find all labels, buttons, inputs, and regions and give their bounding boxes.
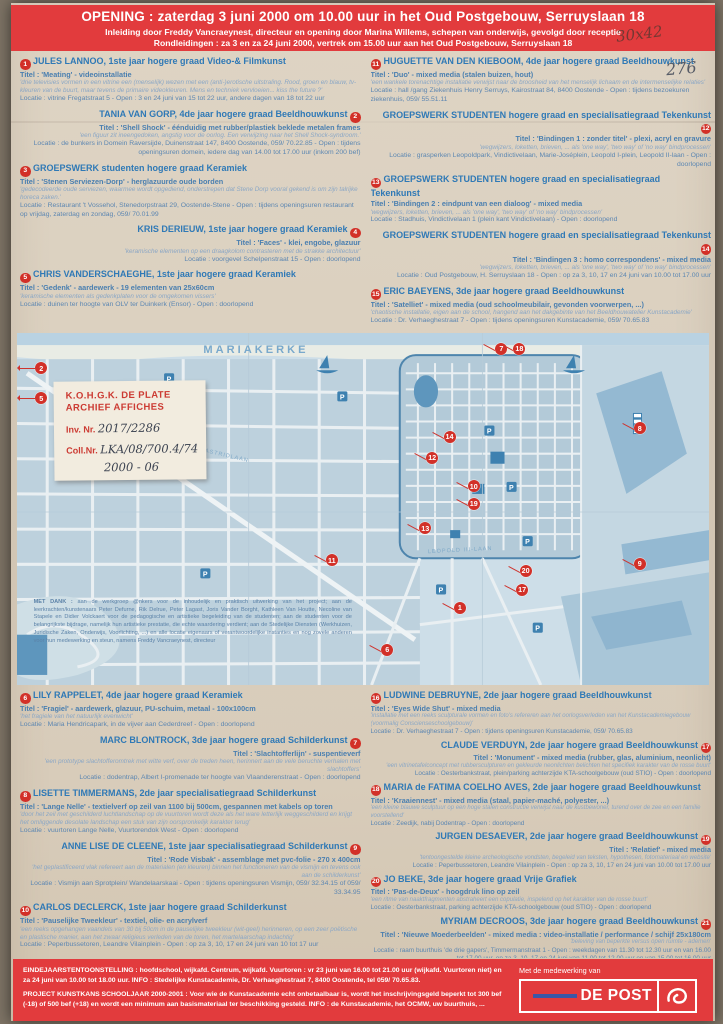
artwork-description: 'keramische elementen op een draagkolom … [20, 248, 361, 256]
map-marker-13: 13 [419, 522, 431, 534]
entry-heading: 10 CARLOS DECLERCK, 1ste jaar hogere gra… [20, 902, 361, 916]
map-marker-20: 20 [520, 565, 532, 577]
exhibit-entry-18: 18 MARIA de FATIMA COELHO AVES, 2de jaar… [371, 782, 712, 829]
artwork-location: Locatie : Oesterbankstraat, plein/parkin… [371, 770, 712, 778]
artist-name: GROEPSWERK STUDENTEN hogere graad en spe… [383, 230, 711, 240]
artwork-title: Titel : 'Eyes Wide Shut' - mixed media [371, 704, 712, 713]
artwork-title: Titel : 'Pas-de-Deux' - hoogdruk lino op… [371, 887, 712, 896]
map-marker-5: 5 [35, 392, 47, 404]
entry-number-badge: 18 [371, 785, 382, 796]
artist-name: MARC BLONTROCK, 3de jaar hogere graad Sc… [100, 735, 348, 745]
exhibit-entry-2: TANIA VAN GORP, 4de jaar hogere graad Be… [20, 109, 361, 158]
city-map: P P P P P P P P MARIAKERKE KONINGIN ASTR… [17, 333, 709, 685]
artwork-location: Locatie : Dr. Verhaeghestraat 7 - Open :… [371, 317, 712, 326]
artist-name: LILY RAPPELET, 4de jaar hogere graad Ker… [33, 690, 243, 700]
artwork-description: 'een kleine blauwe sculptuur op een hoge… [371, 805, 712, 820]
exhibit-entry-12: GROEPSWERK STUDENTEN hogere graad en spe… [371, 110, 712, 170]
artist-name: GROEPSWERK studenten hogere graad Kerami… [33, 163, 247, 173]
entry-number-badge: 6 [20, 693, 31, 704]
artist-name: GROEPSWERK STUDENTEN hogere graad en spe… [371, 174, 661, 198]
entry-heading: 20 JO BEKE, 3de jaar hogere graad Vrije … [371, 874, 712, 888]
sponsor-label: Met de medewerking van [519, 966, 705, 975]
artwork-location: Locatie : de bunkers in Domein Raversijd… [20, 140, 361, 158]
artwork-description: 'chaotische installatie, eigen aan de sc… [371, 309, 712, 317]
entry-heading: 1 JULES LANNOO, 1ste jaar hogere graad V… [20, 56, 361, 70]
exhibit-entry-10: 10 CARLOS DECLERCK, 1ste jaar hogere gra… [20, 902, 361, 950]
de-post-wordmark: DE POST [521, 981, 657, 1011]
artwork-location: Locatie : Vismijn aan Sprotplein/ Wandel… [20, 880, 361, 898]
exhibit-entry-11: 11 HUGUETTE VAN DEN KIEBOOM, 4de jaar ho… [371, 56, 712, 105]
artist-name: JO BEKE, 3de jaar hogere graad Vrije Gra… [384, 874, 577, 884]
entry-heading: 5 CHRIS VANDERSCHAEGHE, 1ste jaar hogere… [20, 269, 361, 283]
exhibit-entry-14: GROEPSWERK STUDENTEN hogere graad en spe… [371, 230, 712, 281]
artwork-location: Locatie : vuurtoren Lange Nelle, Vuurtor… [20, 827, 361, 836]
acknowledgements-text: aan de werkgroep @nkers voor de inhoudel… [34, 599, 352, 644]
entry-heading: 18 MARIA de FATIMA COELHO AVES, 2de jaar… [371, 782, 712, 796]
acknowledgements-label: MET DANK : [34, 599, 73, 605]
artwork-description: 'tentoongestelde kleine archeologische v… [371, 855, 712, 863]
artwork-location: Locatie : Oesterbankstraat, parking acht… [371, 904, 712, 912]
entry-number-badge: 21 [701, 919, 712, 930]
artwork-description: 'wegwijzers, loketten, brieven, ... als … [371, 209, 712, 217]
entry-number-badge: 17 [701, 743, 712, 754]
header-band: OPENING : zaterdag 3 juni 2000 om 10.00 … [11, 5, 715, 51]
exhibit-entry-6: 6 LILY RAPPELET, 4de jaar hogere graad K… [20, 690, 361, 730]
map-marker-6: 6 [381, 644, 393, 656]
artist-name: GROEPSWERK STUDENTEN hogere graad en spe… [383, 110, 711, 120]
entry-heading: 11 HUGUETTE VAN DEN KIEBOOM, 4de jaar ho… [371, 56, 712, 70]
entries-top-section: 1 JULES LANNOO, 1ste jaar hogere graad V… [20, 56, 711, 332]
artwork-description: 'een prototype slachtofferomtrek met wit… [20, 758, 361, 774]
artwork-description: 'een ritme van naaktfragmenten abstrahee… [371, 897, 712, 905]
artwork-description: 'wegwijzers, loketten, brieven, ... als … [371, 264, 712, 272]
artwork-location: Locatie : hall /gang Ziekenhuis Henry Se… [371, 87, 712, 105]
entry-heading: GROEPSWERK STUDENTEN hogere graad en spe… [371, 110, 712, 135]
map-marker-18: 18 [513, 343, 525, 355]
entries-column-bottom-right: 16 LUDWINE DEBRUYNE, 2de jaar hogere gra… [371, 690, 712, 958]
artwork-title: Titel : 'Meating' - videoinstallatie [20, 70, 361, 79]
artwork-location: Locatie : Stadhuis, Vindictivelaan 1 (pl… [371, 216, 712, 225]
project-info: PROJECT KUNSTKANS SCHOOLJAAR 2000-2001 :… [23, 990, 509, 1009]
entry-heading: 13 GROEPSWERK STUDENTEN hogere graad en … [371, 174, 712, 199]
map-marker-11: 11 [326, 554, 338, 566]
entry-number-badge: 4 [350, 228, 361, 239]
entry-heading: ANNE LISE DE CLEENE, 1ste jaar specialis… [20, 841, 361, 855]
entry-heading: 16 LUDWINE DEBRUYNE, 2de jaar hogere gra… [371, 690, 712, 704]
collection-number-label: Coll.Nr. [66, 445, 98, 455]
entry-number-badge: 12 [701, 124, 712, 135]
entry-number-badge: 11 [371, 59, 382, 70]
artwork-title: Titel : 'Fragiel' - aardewerk, glazuur, … [20, 704, 361, 713]
de-post-name: DE POST [580, 987, 652, 1005]
artwork-title: Titel : 'Duo' - mixed media (stalen buiz… [371, 70, 712, 79]
entry-heading: KRIS DERIEUW, 1ste jaar hogere graad Ker… [20, 224, 361, 238]
artwork-title: Titel : 'Shell Shock' - éénduidig met ru… [20, 123, 361, 132]
artwork-description: 'beleving van beperkte versus open ruimt… [371, 939, 712, 947]
artwork-location: Locatie : Dr. Verhaeghestraat 7 - Open :… [371, 728, 712, 736]
entry-number-badge: 9 [350, 844, 361, 855]
artwork-description: 'het fragiele van het natuurlijk evenwic… [20, 713, 361, 721]
entry-heading: JURGEN DESAEVER, 2de jaar hogere graad B… [371, 831, 712, 845]
entry-number-badge: 2 [350, 112, 361, 123]
artist-name: CLAUDE VERDUYN, 2de jaar hogere graad Be… [441, 740, 698, 750]
artist-name: KRIS DERIEUW, 1ste jaar hogere graad Ker… [137, 224, 347, 234]
opening-subtitle: Inleiding door Freddy Vancraeynest, dire… [11, 27, 715, 37]
de-post-posthorn-box [657, 981, 695, 1011]
map-marker-1: 1 [454, 602, 466, 614]
entry-heading: MYRIAM DECROOS, 3de jaar hogere graad Be… [371, 916, 712, 930]
exhibit-entry-4: KRIS DERIEUW, 1ste jaar hogere graad Ker… [20, 224, 361, 264]
artwork-description: 'het geplastificeerd vlak refereert aan … [20, 864, 361, 880]
entries-column-top-left: 1 JULES LANNOO, 1ste jaar hogere graad V… [20, 56, 361, 332]
entry-heading: GROEPSWERK STUDENTEN hogere graad en spe… [371, 230, 712, 255]
map-marker-19: 19 [468, 498, 480, 510]
entry-number-badge: 20 [371, 877, 382, 888]
entry-number-badge: 13 [371, 178, 382, 189]
archive-label: K.O.H.G.K. DE PLATE ARCHIEF AFFICHES Inv… [53, 380, 206, 480]
exhibit-entry-15: 15 ERIC BAEYENS, 3de jaar hogere graad B… [371, 286, 712, 326]
artist-name: TANIA VAN GORP, 4de jaar hogere graad Be… [99, 109, 347, 119]
entries-bottom-section: 6 LILY RAPPELET, 4de jaar hogere graad K… [20, 690, 711, 958]
artwork-location: Locatie : voorgevel Schelpenstraat 15 - … [20, 256, 361, 265]
artist-name: MARIA de FATIMA COELHO AVES, 2de jaar ho… [384, 782, 701, 792]
exhibit-entry-5: 5 CHRIS VANDERSCHAEGHE, 1ste jaar hogere… [20, 269, 361, 309]
map-marker-14: 14 [444, 431, 456, 443]
collection-number-value: LKA/08/700.4/74 [100, 441, 198, 456]
inventory-number-label: Inv. Nr. [66, 424, 95, 434]
artwork-title: Titel : 'Bindingen 1 : zonder titel' - p… [371, 134, 712, 143]
exhibit-entry-13: 13 GROEPSWERK STUDENTEN hogere graad en … [371, 174, 712, 225]
artist-name: ANNE LISE DE CLEENE, 1ste jaar specialis… [61, 841, 347, 851]
artwork-location: Locatie : Peperbussetoren, Leandre Vilai… [20, 941, 361, 950]
artwork-title: Titel : 'Bindingen 3 : homo corresponden… [371, 255, 712, 264]
entry-number-badge: 16 [371, 693, 382, 704]
artist-name: HUGUETTE VAN DEN KIEBOOM, 4de jaar hoger… [384, 56, 694, 66]
posthorn-icon [664, 983, 690, 1009]
artwork-title: Titel : 'Bindingen 2 : eindpunt van een … [371, 199, 712, 208]
artwork-location: Locatie : vitrine Fregatstraat 5 - Open … [20, 95, 361, 104]
artwork-description: 'door het zeil met geschilderd luchtland… [20, 811, 361, 827]
entries-column-bottom-left: 6 LILY RAPPELET, 4de jaar hogere graad K… [20, 690, 361, 958]
artwork-title: Titel : 'Pauselijke Tweekleur' - textiel… [20, 916, 361, 925]
poster: OPENING : zaterdag 3 juni 2000 om 10.00 … [11, 3, 715, 1021]
artwork-description: 'wegwijzers, loketten, brieven, ... als … [371, 144, 712, 152]
entry-number-badge: 8 [20, 791, 31, 802]
artwork-location: Locatie : Maria Hendricapark, in de vijv… [20, 721, 361, 730]
artwork-location: Locatie : Zeedijk, nabij Dodentrap - Ope… [371, 820, 712, 828]
artwork-title: Titel : 'Gedenk' - aardewerk - 19 elemen… [20, 283, 361, 292]
artwork-location: Locatie : raam buurthuis 'de drie gapers… [371, 947, 712, 958]
artwork-description: 'een reeks opgehangen vaandels van 30 bi… [20, 926, 361, 942]
entry-number-badge: 3 [20, 166, 31, 177]
tour-info: Rondleidingen : za 3 en za 24 juni 2000,… [11, 38, 715, 48]
exhibit-entry-17: CLAUDE VERDUYN, 2de jaar hogere graad Be… [371, 740, 712, 779]
exhibit-entry-19: JURGEN DESAEVER, 2de jaar hogere graad B… [371, 831, 712, 870]
artist-name: JULES LANNOO, 1ste jaar hogere graad Vid… [33, 56, 286, 66]
artwork-title: Titel : 'Relatief' - mixed media [371, 845, 712, 854]
archive-org-line2: ARCHIEF AFFICHES [65, 401, 195, 414]
entries-column-top-right: 11 HUGUETTE VAN DEN KIEBOOM, 4de jaar ho… [371, 56, 712, 332]
entry-heading: 15 ERIC BAEYENS, 3de jaar hogere graad B… [371, 286, 712, 300]
exhibit-entry-9: ANNE LISE DE CLEENE, 1ste jaar specialis… [20, 841, 361, 898]
artwork-description: 'installatie met een reeks sculpturale v… [371, 713, 712, 728]
artist-name: ERIC BAEYENS, 3de jaar hogere graad Beel… [384, 286, 625, 296]
entry-number-badge: 19 [701, 835, 712, 846]
exhibition-info: EINDEJAARSTENTOONSTELLING : hoofdschool,… [23, 966, 509, 985]
de-post-blue-line [533, 994, 577, 998]
map-marker-10: 10 [468, 480, 480, 492]
handwritten-archive-number: 276 [666, 58, 698, 80]
footer-band: EINDEJAARSTENTOONSTELLING : hoofdschool,… [13, 959, 713, 1021]
entry-heading: TANIA VAN GORP, 4de jaar hogere graad Be… [20, 109, 361, 123]
archive-year: 2000 - 06 [66, 459, 196, 474]
artwork-location: Locatie : Peperbussetoren, Leandre Vilai… [371, 862, 712, 870]
artwork-title: Titel : 'Monument' - mixed media (rubber… [371, 753, 712, 762]
artist-name: LUDWINE DEBRUYNE, 2de jaar hogere graad … [384, 690, 652, 700]
artist-name: CARLOS DECLERCK, 1ste jaar hogere graad … [33, 902, 287, 912]
opening-title: OPENING : zaterdag 3 juni 2000 om 10.00 … [11, 9, 715, 24]
entry-number-badge: 5 [20, 273, 31, 284]
inventory-number-value: 2017/2286 [97, 420, 160, 435]
artwork-title: Titel : 'Nieuwe Moederbeelden' - mixed m… [371, 930, 712, 939]
artwork-title: Titel : 'Stenen Serviezen-Dorp' - hergla… [20, 177, 361, 186]
map-marker-17: 17 [516, 584, 528, 596]
artwork-title: Titel : 'Rode Visbak' - assemblage met p… [20, 855, 361, 864]
artwork-description: 'drie televisies vormen in een vitrine e… [20, 79, 361, 95]
artwork-title: Titel : 'Lange Nelle' - textielverf op z… [20, 802, 361, 811]
acknowledgements: MET DANK : aan de werkgroep @nkers voor … [34, 599, 352, 646]
artist-name: JURGEN DESAEVER, 2de jaar hogere graad B… [435, 831, 698, 841]
entry-heading: 3 GROEPSWERK studenten hogere graad Kera… [20, 163, 361, 177]
entry-number-badge: 14 [701, 244, 712, 255]
exhibit-entry-21: MYRIAM DECROOS, 3de jaar hogere graad Be… [371, 916, 712, 958]
entry-heading: 8 LISETTE TIMMERMANS, 2de jaar specialis… [20, 788, 361, 802]
artwork-title: Titel : 'Faces' - klei, engobe, glazuur [20, 238, 361, 247]
exhibit-entry-7: MARC BLONTROCK, 3de jaar hogere graad Sc… [20, 735, 361, 783]
artwork-description: 'een figuur zit ineengedoken, angstig vo… [20, 132, 361, 140]
exhibit-entry-20: 20 JO BEKE, 3de jaar hogere graad Vrije … [371, 874, 712, 913]
entry-number-badge: 10 [20, 906, 31, 917]
entry-number-badge: 1 [20, 59, 31, 70]
map-marker-2: 2 [35, 362, 47, 374]
artist-name: MYRIAM DECROOS, 3de jaar hogere graad Be… [440, 916, 698, 926]
artwork-description: 'een wankele torenachtige installatie ve… [371, 79, 712, 87]
exhibit-entry-8: 8 LISETTE TIMMERMANS, 2de jaar specialis… [20, 788, 361, 836]
exhibit-entry-3: 3 GROEPSWERK studenten hogere graad Kera… [20, 163, 361, 220]
entry-heading: MARC BLONTROCK, 3de jaar hogere graad Sc… [20, 735, 361, 749]
exhibit-entry-16: 16 LUDWINE DEBRUYNE, 2de jaar hogere gra… [371, 690, 712, 737]
artwork-title: Titel : 'Satelliet' - mixed media (oud s… [371, 300, 712, 309]
artwork-location: Locatie : Oud Postgebouw, H. Serruyslaan… [371, 272, 712, 281]
artwork-location: Locatie : grasperken Leopoldpark, Vindic… [371, 152, 712, 170]
map-marker-8: 8 [634, 422, 646, 434]
artwork-location: Locatie : duinen ter hoogte van OLV ter … [20, 301, 361, 310]
entry-number-badge: 15 [371, 289, 382, 300]
footer-info: EINDEJAARSTENTOONSTELLING : hoofdschool,… [23, 966, 519, 1015]
artist-name: CHRIS VANDERSCHAEGHE, 1ste jaar hogere g… [33, 269, 296, 279]
de-post-logo: DE POST [519, 979, 697, 1013]
artwork-description: 'gedecodeerde oude serviezen, waarmee wo… [20, 186, 361, 202]
artwork-title: Titel : 'Slachtofferlijn' - suspentiever… [20, 749, 361, 758]
artwork-description: 'keramische elementen als gedenkplaten v… [20, 293, 361, 301]
artwork-title: Titel : 'Kraaiennest' - mixed media (sta… [371, 796, 712, 805]
entry-number-badge: 7 [350, 738, 361, 749]
artwork-location: Locatie : Restaurant 't Vossehol, Stened… [20, 202, 361, 220]
map-marker-12: 12 [426, 452, 438, 464]
entry-heading: CLAUDE VERDUYN, 2de jaar hogere graad Be… [371, 740, 712, 754]
artwork-description: 'een vitrinetafelconcept met rubbersculp… [371, 763, 712, 771]
entry-heading: 6 LILY RAPPELET, 4de jaar hogere graad K… [20, 690, 361, 704]
artwork-location: Locatie : dodentrap, Albert I-promenade … [20, 774, 361, 783]
sponsor-area: Met de medewerking van DE POST [519, 966, 705, 1015]
archive-org-line1: K.O.H.G.K. DE PLATE [65, 389, 195, 402]
map-marker-9: 9 [634, 558, 646, 570]
exhibit-entry-1: 1 JULES LANNOO, 1ste jaar hogere graad V… [20, 56, 361, 104]
artist-name: LISETTE TIMMERMANS, 2de jaar specialisat… [33, 788, 316, 798]
